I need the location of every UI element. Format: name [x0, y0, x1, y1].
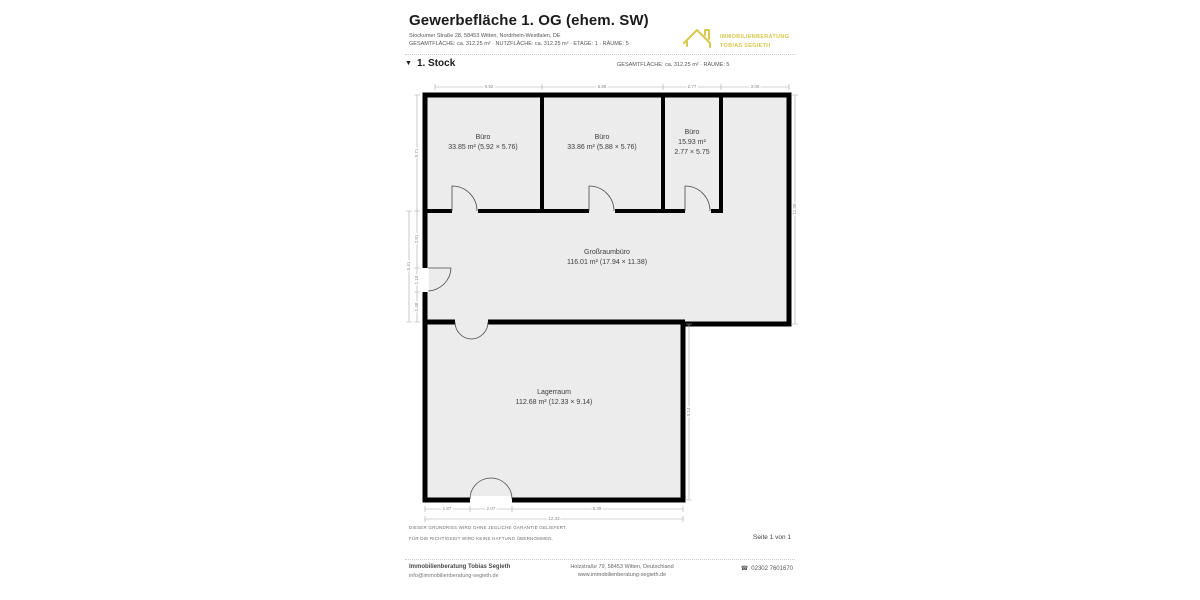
dim-right-lager: 9.14 — [687, 407, 692, 418]
dim-left-4: 1.48 — [415, 302, 420, 313]
company-logo: IMMOBILIENBERATUNG TOBIAS SEGIETH — [682, 26, 789, 57]
dim-top-4: 3.06 — [750, 85, 761, 90]
dim-bottom-2: 2.07 — [486, 507, 497, 512]
dim-bottom-total: 12.33 — [547, 517, 560, 522]
floor-plan-drawing: Büro33.85 m² (5.92 × 5.76) Büro33.86 m² … — [405, 78, 795, 528]
footer-address: Holzstraße 79, 58453 Witten, Deutschland — [547, 563, 697, 571]
room-label-grossraumbuero: Großraumbüro116.01 m² (17.94 × 11.38) — [567, 248, 647, 268]
footer-phone: 02302 7601670 — [751, 566, 793, 572]
dim-top-2: 5.88 — [597, 85, 608, 90]
property-address: Stockumer Straße 28, 58453 Witten, Nordr… — [409, 33, 561, 39]
dim-top-3: 2.77 — [687, 85, 698, 90]
dim-bottom-3: 8.39 — [592, 507, 603, 512]
room-label-lagerraum: Lagerraum112.68 m² (12.33 × 9.14) — [516, 388, 593, 408]
dim-bottom-1: 1.87 — [442, 507, 453, 512]
dim-right-total: 11.38 — [793, 203, 798, 216]
room-label-buero1: Büro33.85 m² (5.92 × 5.76) — [448, 133, 517, 153]
section-header: ▼ 1. Stock — [405, 58, 455, 69]
page-number: Seite 1 von 1 — [753, 534, 791, 541]
dim-left-3: 1.18 — [415, 275, 420, 286]
logo-line2: TOBIAS SEGIETH — [720, 42, 789, 50]
footer-website: www.immobilienberatung-segieth.de — [547, 571, 697, 579]
logo-line1: IMMOBILIENBERATUNG — [720, 33, 789, 41]
section-title: 1. Stock — [417, 58, 455, 69]
disclaimer-line1: DIESER GRUNDRISS WIRD OHNE JEGLICHE GARA… — [409, 525, 567, 530]
footer-company: Immobilienberatung Tobias Segieth — [409, 563, 510, 572]
section-meta: GESAMTFLÄCHE: ca. 312.25 m² · RÄUME: 5 — [617, 62, 729, 68]
footer-email: info@immobilienberatung-segieth.de — [409, 572, 510, 580]
phone-icon: ☎ — [741, 565, 748, 572]
dim-left-2: 2.81 — [415, 234, 420, 245]
collapse-arrow-icon: ▼ — [405, 60, 412, 67]
page-title: Gewerbefläche 1. OG (ehem. SW) — [409, 12, 649, 29]
footer-divider — [405, 559, 795, 560]
dim-left-1: 5.71 — [415, 148, 420, 159]
house-icon — [682, 26, 716, 57]
room-label-buero2: Büro33.86 m² (5.88 × 5.76) — [567, 133, 636, 153]
floorplan-page: Gewerbefläche 1. OG (ehem. SW) Stockumer… — [0, 0, 1200, 600]
room-label-buero3: Büro15.93 m²2.77 × 5.75 — [674, 128, 709, 158]
footer-phone-block: ☎ 02302 7601670 — [741, 565, 793, 572]
disclaimer-line2: FÜR DIE RICHTIGKEIT WIRD KEINE HAFTUNG Ü… — [409, 536, 553, 541]
footer-company-block: Immobilienberatung Tobias Segieth info@i… — [409, 563, 510, 580]
property-meta: GESAMTFLÄCHE: ca. 312.25 m² · NUTZFLÄCHE… — [409, 41, 629, 47]
header-divider — [405, 54, 795, 55]
dim-left-total: 5.41 — [407, 261, 412, 272]
footer-address-block: Holzstraße 79, 58453 Witten, Deutschland… — [547, 563, 697, 580]
dim-top-1: 5.92 — [484, 85, 495, 90]
